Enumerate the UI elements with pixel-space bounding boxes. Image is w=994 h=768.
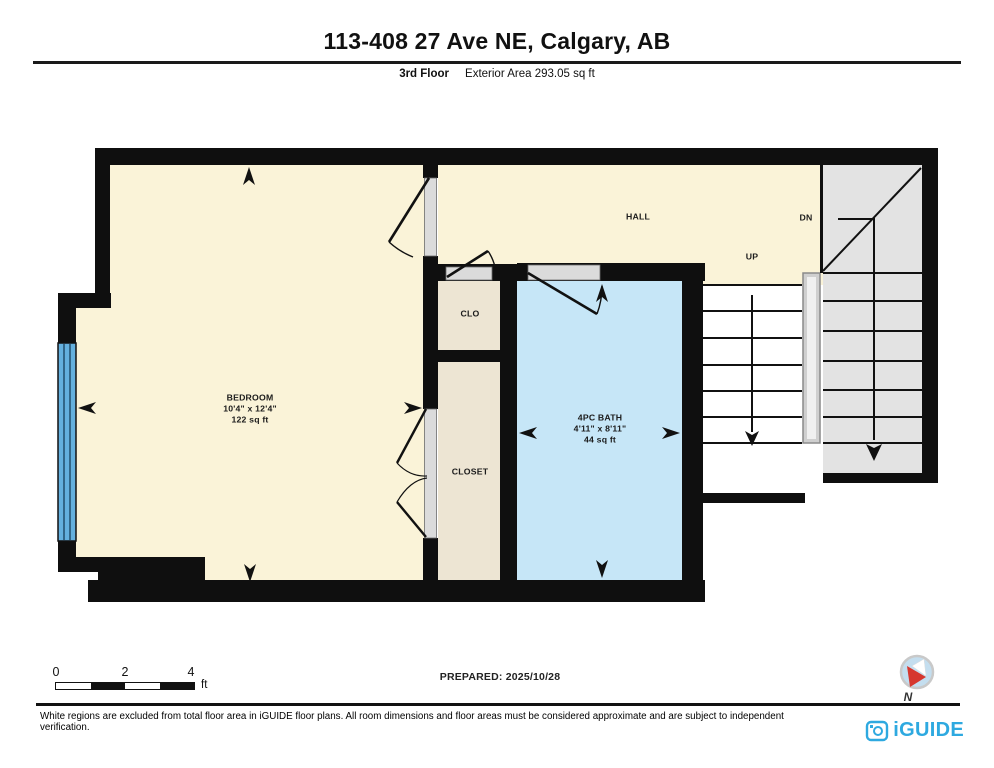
- prepared-date: PREPARED: 2025/10/28: [440, 671, 561, 683]
- iguide-logo-text: iGUIDE: [893, 719, 964, 742]
- bath-label: 4PC BATH 4'11" x 8'11" 44 sq ft: [574, 413, 627, 446]
- scale-segment: [56, 683, 91, 689]
- scale-segment: [160, 683, 195, 689]
- bedroom-area: 122 sq ft: [223, 415, 277, 426]
- hall-label: HALL: [626, 212, 650, 223]
- bedroom-label: BEDROOM 10'4" x 12'4" 122 sq ft: [223, 393, 277, 426]
- floorplan-drawing: [0, 0, 994, 768]
- window: [58, 343, 76, 541]
- bedroom-name: BEDROOM: [223, 393, 277, 404]
- compass-north-label: N: [904, 690, 913, 704]
- stair-railing-inner: [807, 277, 816, 439]
- iguide-logo: iGUIDE: [865, 719, 964, 742]
- disclaimer-text: White regions are excluded from total fl…: [40, 711, 820, 733]
- room-bedroom-fill: [76, 163, 425, 580]
- clo-label: CLO: [461, 309, 480, 320]
- scale-bar: [55, 682, 195, 690]
- iguide-logo-icon: [865, 720, 889, 742]
- scale-tick-0: 0: [53, 665, 60, 679]
- closet-label: CLOSET: [452, 467, 488, 478]
- scale-unit-label: ft: [201, 679, 207, 691]
- compass-icon: [901, 656, 933, 688]
- floorplan-page: 113-408 27 Ave NE, Calgary, AB 3rd Floor…: [0, 0, 994, 768]
- bedroom-dims: 10'4" x 12'4": [223, 404, 277, 415]
- stairs-up-label: UP: [746, 252, 758, 263]
- scale-tick-2: 2: [122, 665, 129, 679]
- stairs-dn-label: DN: [800, 213, 813, 224]
- scale-segment: [125, 683, 160, 689]
- scale-segment: [91, 683, 126, 689]
- bath-area: 44 sq ft: [574, 435, 627, 446]
- bath-dims: 4'11" x 8'11": [574, 424, 627, 435]
- footer-divider: [36, 703, 960, 706]
- bath-name: 4PC BATH: [574, 413, 627, 424]
- scale-tick-4: 4: [188, 665, 195, 679]
